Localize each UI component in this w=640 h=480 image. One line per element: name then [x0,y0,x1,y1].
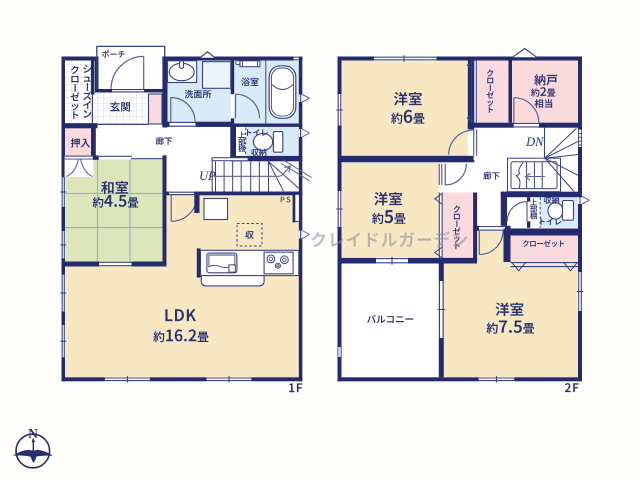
svg-text:DN: DN [525,135,544,149]
svg-text:UP: UP [199,169,216,183]
